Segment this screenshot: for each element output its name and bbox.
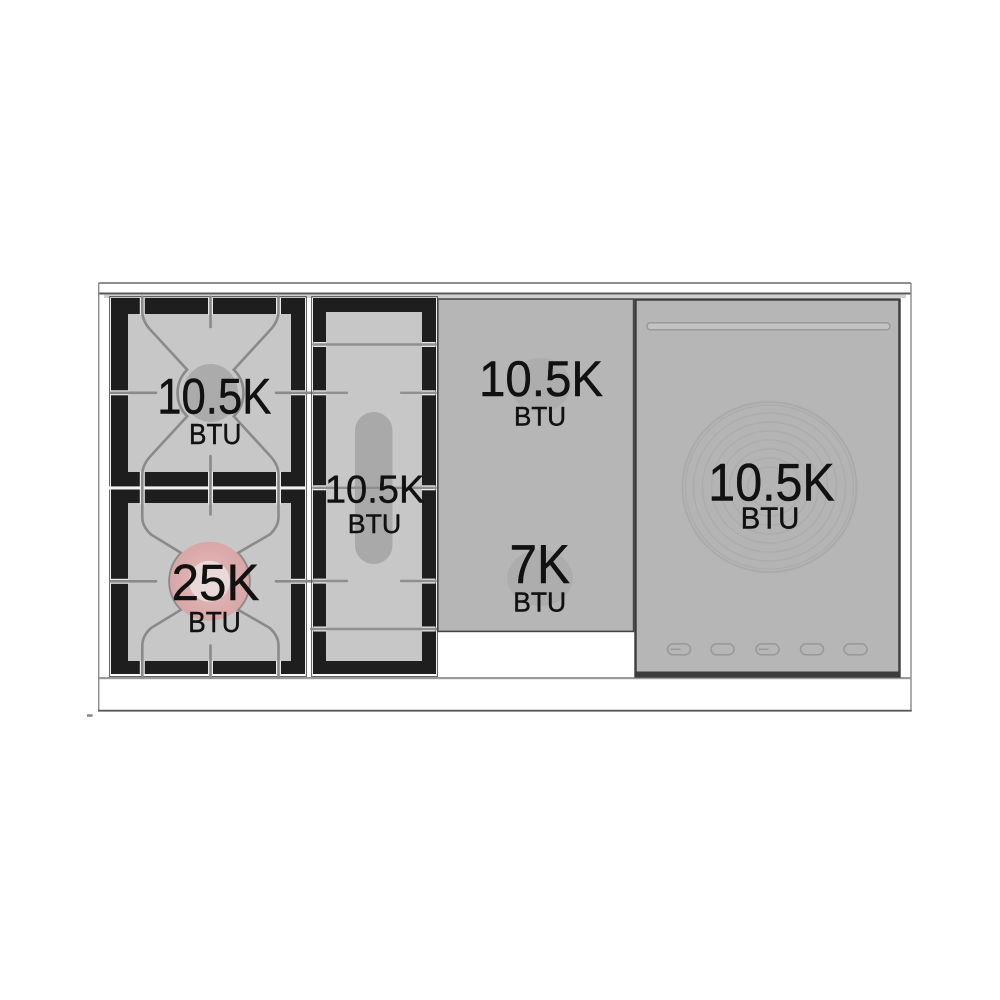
- svg-text:10.5K: 10.5K: [325, 468, 425, 511]
- svg-text:BTU: BTU: [348, 509, 402, 539]
- svg-text:10.5K: 10.5K: [479, 351, 603, 407]
- svg-text:BTU: BTU: [741, 500, 800, 535]
- svg-text:BTU: BTU: [513, 587, 566, 618]
- svg-text:BTU: BTU: [514, 402, 566, 432]
- svg-text:25K: 25K: [172, 554, 260, 611]
- svg-text:10.5K: 10.5K: [157, 368, 271, 424]
- svg-text:BTU: BTU: [189, 419, 241, 451]
- svg-text:BTU: BTU: [188, 607, 241, 639]
